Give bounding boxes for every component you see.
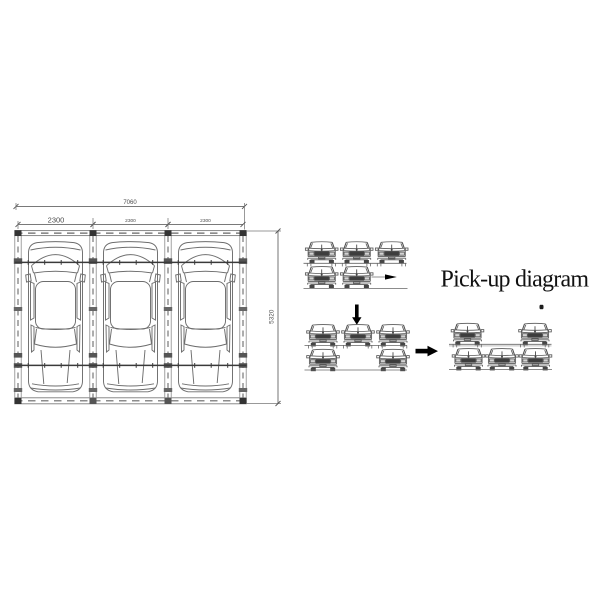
- svg-text:2300: 2300: [200, 218, 211, 224]
- svg-text:7060: 7060: [123, 200, 137, 206]
- svg-text:5320: 5320: [269, 309, 276, 324]
- svg-text:2300: 2300: [125, 218, 136, 224]
- svg-text:2300: 2300: [48, 216, 65, 225]
- svg-text:Pick-up diagram: Pick-up diagram: [441, 267, 590, 293]
